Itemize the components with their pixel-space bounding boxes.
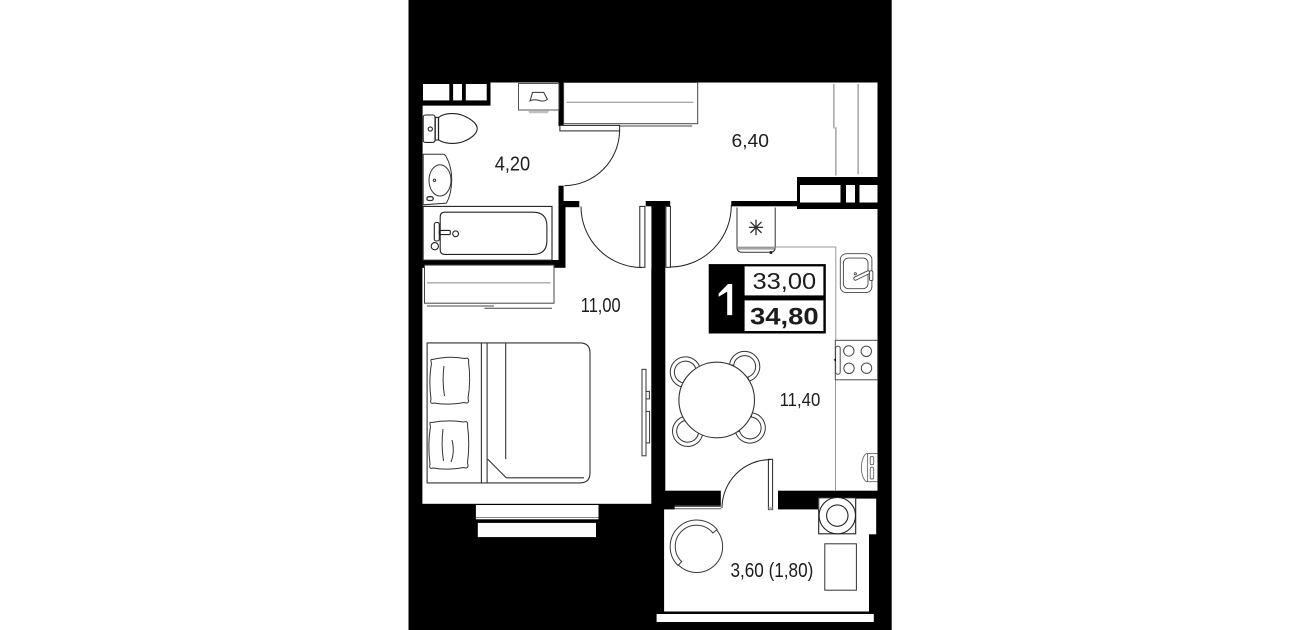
svg-text:34,80: 34,80 [750,304,819,331]
svg-text:4,20: 4,20 [495,154,531,176]
svg-text:11,00: 11,00 [581,295,621,317]
svg-text:6,40: 6,40 [732,131,770,151]
svg-text:3,60 (1,80): 3,60 (1,80) [731,560,814,582]
svg-text:11,40: 11,40 [780,389,821,410]
svg-text:33,00: 33,00 [753,268,817,294]
